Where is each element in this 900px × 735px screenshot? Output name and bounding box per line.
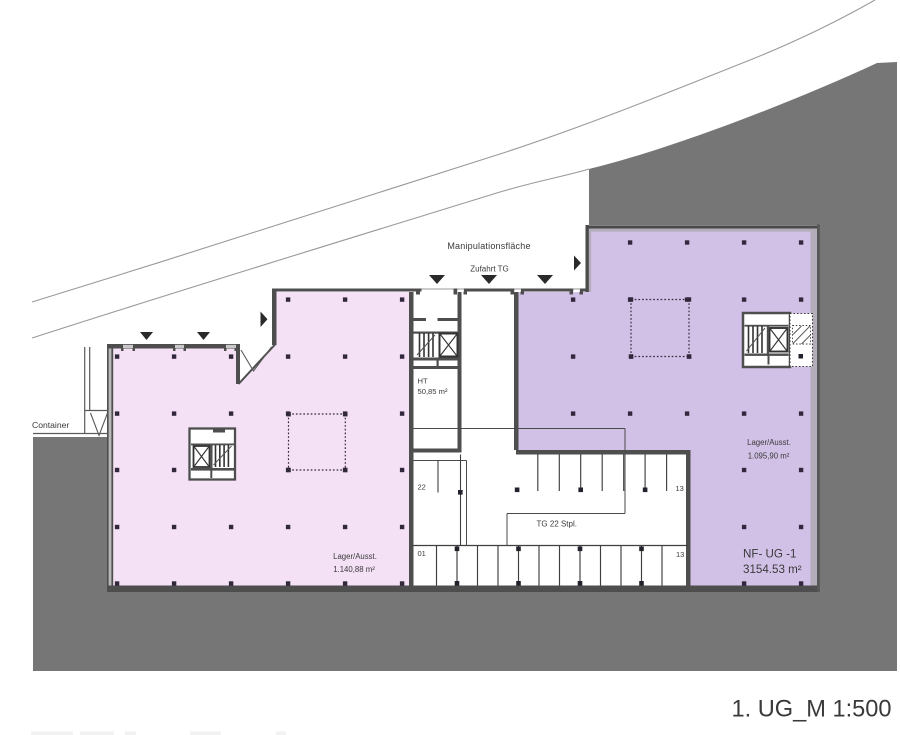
svg-text:NF- UG -1: NF- UG -1 bbox=[743, 548, 796, 561]
svg-text:22: 22 bbox=[418, 483, 426, 492]
svg-text:50,85 m²: 50,85 m² bbox=[418, 387, 448, 396]
svg-text:1.095,90 m²: 1.095,90 m² bbox=[748, 452, 790, 461]
svg-text:01: 01 bbox=[418, 549, 426, 558]
svg-text:13: 13 bbox=[676, 550, 684, 559]
svg-text:HT: HT bbox=[418, 377, 428, 386]
svg-text:Manipulationsfläche: Manipulationsfläche bbox=[447, 241, 530, 251]
svg-text:TG 22 Stpl.: TG 22 Stpl. bbox=[537, 520, 577, 529]
svg-text:Zufahrt TG: Zufahrt TG bbox=[470, 265, 509, 274]
svg-text:Container: Container bbox=[32, 420, 69, 430]
svg-text:Lager/Ausst.: Lager/Ausst. bbox=[333, 552, 377, 561]
svg-text:Lager/Ausst.: Lager/Ausst. bbox=[747, 438, 791, 447]
svg-text:1. UG_M 1:500: 1. UG_M 1:500 bbox=[732, 697, 892, 723]
svg-text:1.140,88 m²: 1.140,88 m² bbox=[333, 565, 375, 574]
svg-text:3154.53 m²: 3154.53 m² bbox=[743, 563, 802, 576]
svg-text:13: 13 bbox=[676, 484, 684, 493]
